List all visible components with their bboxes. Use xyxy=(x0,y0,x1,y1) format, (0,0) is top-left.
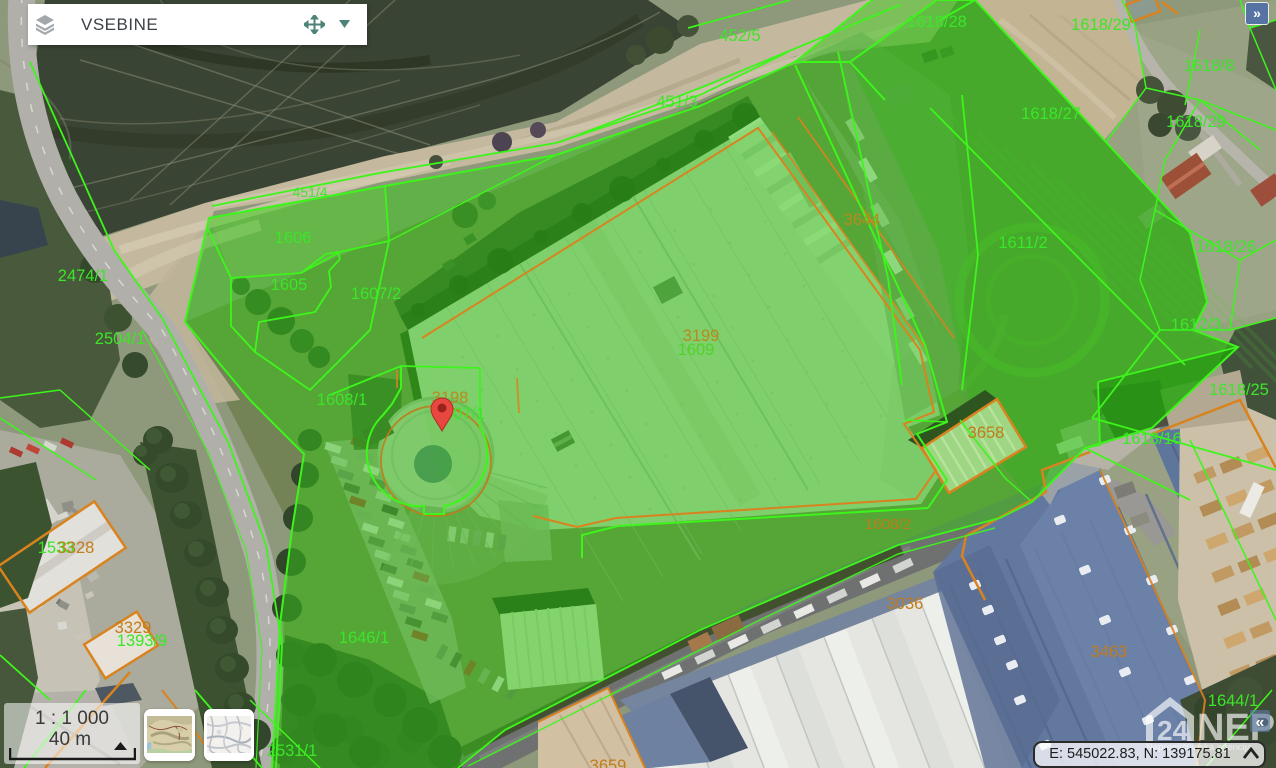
svg-text:«: « xyxy=(1256,714,1265,731)
svg-text:2474/1: 2474/1 xyxy=(58,267,108,285)
svg-text:452/5: 452/5 xyxy=(719,27,760,45)
svg-text:1609: 1609 xyxy=(678,341,715,359)
svg-text:3328: 3328 xyxy=(58,539,95,557)
svg-text:3659: 3659 xyxy=(590,757,627,768)
svg-text:1618/8: 1618/8 xyxy=(1184,57,1234,75)
svg-text:1618/25: 1618/25 xyxy=(1209,381,1269,399)
svg-text:3463: 3463 xyxy=(1091,643,1128,661)
svg-text:1608/2: 1608/2 xyxy=(865,516,911,533)
svg-text:1618/29: 1618/29 xyxy=(1166,113,1226,131)
svg-text:451/3: 451/3 xyxy=(656,93,697,111)
svg-text:1618/27: 1618/27 xyxy=(1021,105,1081,123)
svg-text:1393/9: 1393/9 xyxy=(117,632,167,650)
svg-text:1618/29: 1618/29 xyxy=(1071,16,1131,34)
svg-text:1606: 1606 xyxy=(275,229,312,247)
svg-text:1646/1: 1646/1 xyxy=(339,629,389,647)
svg-text:2504/1: 2504/1 xyxy=(95,330,145,348)
svg-text:1611/2: 1611/2 xyxy=(998,234,1047,252)
svg-text:1612/3: 1612/3 xyxy=(1171,316,1221,334)
svg-text:1607/2: 1607/2 xyxy=(351,285,401,303)
svg-text:1618/16: 1618/16 xyxy=(1122,430,1182,448)
svg-text:3658: 3658 xyxy=(968,424,1005,442)
svg-text:1618/26: 1618/26 xyxy=(1196,238,1256,256)
svg-text:3036: 3036 xyxy=(887,595,924,613)
svg-text:1608/1: 1608/1 xyxy=(317,391,367,409)
svg-text:2531/1: 2531/1 xyxy=(267,742,317,760)
svg-text:1605: 1605 xyxy=(271,276,308,294)
svg-text:3644: 3644 xyxy=(844,211,881,229)
svg-text:1618/28: 1618/28 xyxy=(907,13,967,31)
svg-text:451/4: 451/4 xyxy=(292,184,327,200)
